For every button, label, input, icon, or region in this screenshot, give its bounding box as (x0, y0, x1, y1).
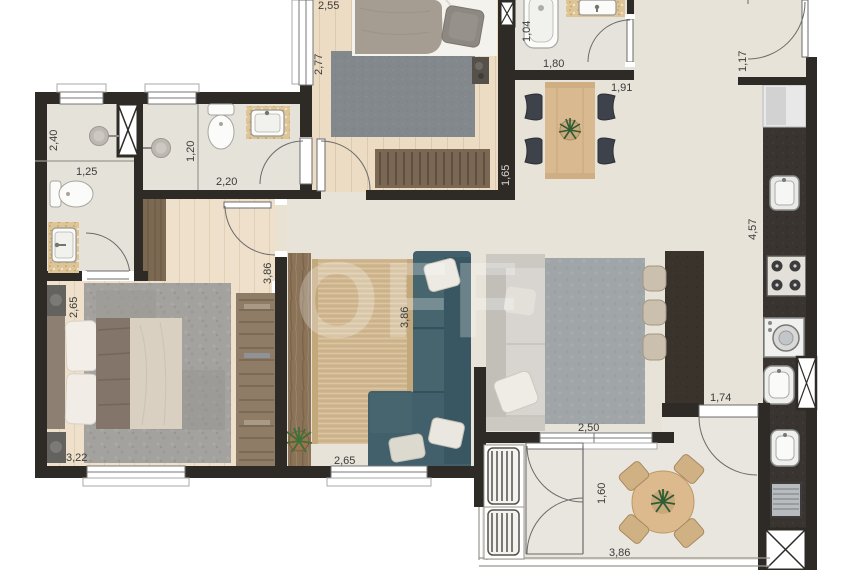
svg-text:1,65: 1,65 (500, 165, 512, 186)
svg-text:3,86: 3,86 (262, 263, 274, 284)
svg-text:4,57: 4,57 (747, 219, 759, 240)
svg-text:2,65: 2,65 (68, 297, 80, 318)
svg-text:1,20: 1,20 (185, 141, 197, 162)
svg-text:3,22: 3,22 (66, 452, 87, 464)
svg-text:1,74: 1,74 (710, 392, 731, 404)
svg-text:2,65: 2,65 (334, 455, 355, 467)
svg-text:1,04: 1,04 (521, 21, 533, 42)
svg-text:2,55: 2,55 (318, 0, 339, 12)
svg-text:2,40: 2,40 (48, 130, 60, 151)
svg-text:3,86: 3,86 (609, 547, 630, 559)
svg-text:1,25: 1,25 (76, 166, 97, 178)
svg-text:1,17: 1,17 (737, 51, 749, 72)
svg-text:2,50: 2,50 (578, 422, 599, 434)
svg-text:3,86: 3,86 (399, 307, 411, 328)
svg-text:OFF: OFF (295, 239, 523, 360)
svg-text:1,80: 1,80 (543, 58, 564, 70)
svg-text:1,60: 1,60 (596, 483, 608, 504)
svg-text:2,20: 2,20 (216, 176, 237, 188)
svg-text:1,91: 1,91 (611, 82, 632, 94)
svg-text:2,77: 2,77 (313, 54, 325, 75)
